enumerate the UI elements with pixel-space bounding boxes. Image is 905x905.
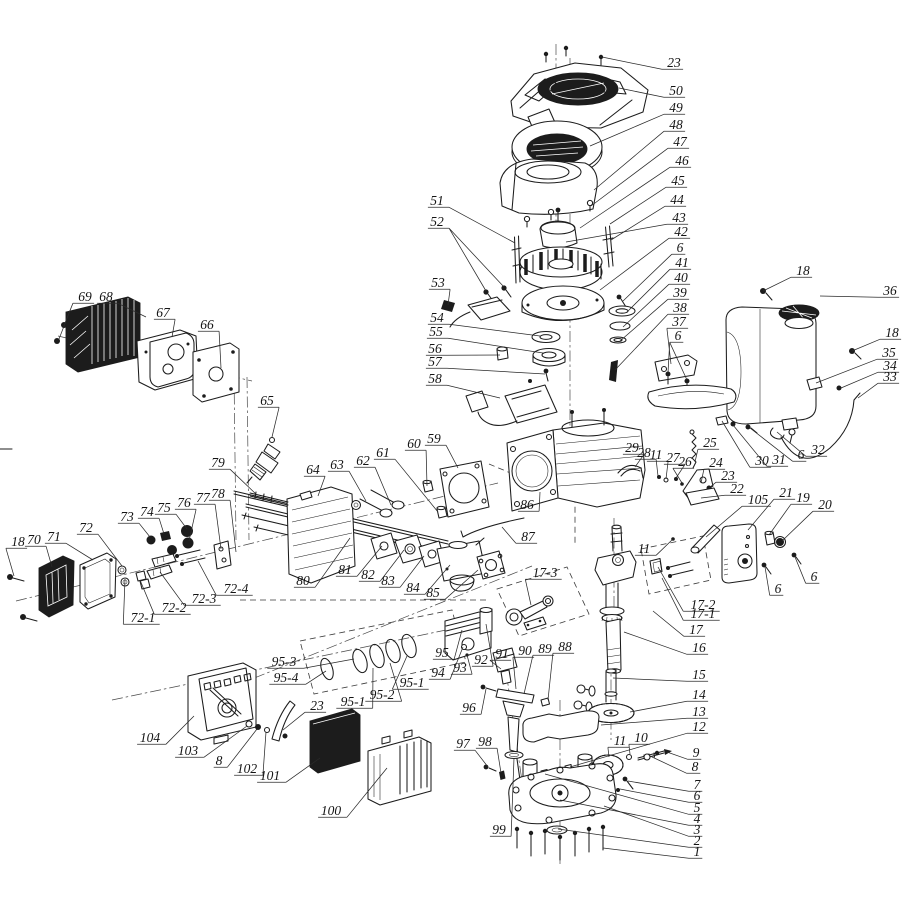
part-number-label: 89 [538,641,552,656]
muffler-gasket [193,343,239,402]
part-number-label: 104 [140,730,161,745]
part-number-label: 17 [689,622,704,637]
callout-95-1: 95-1 [336,668,373,709]
part-number-label: 71 [47,529,61,544]
fuel-filter [807,377,822,390]
part-number-label: 26 [678,454,692,469]
part-number-label: 15 [692,667,706,682]
part-number-label: 64 [306,462,320,477]
valve-cover-gasket [80,553,116,609]
part-number-label: 75 [157,500,171,515]
flywheel-fan [520,247,602,290]
callout-98: 98 [476,734,501,773]
part-number-label: 65 [260,393,274,408]
part-number-label: 72-2 [162,600,187,615]
part-number-label: 17-1 [691,606,716,621]
part-number-label: 95-2 [370,687,395,702]
callout-88: 88 [548,639,574,700]
muffler [137,330,198,390]
part-number-label: 58 [428,371,442,386]
part-number-label: 62 [356,453,370,468]
part-number-label: 69 [78,289,92,304]
part-number-label: 72-4 [224,581,249,596]
control-plate-group [691,524,801,583]
part-number-label: 54 [430,310,444,325]
callout-18: 18 [763,263,812,291]
part-number-label: 77 [196,490,211,505]
part-number-label: 37 [671,314,687,329]
valve-cover [39,556,74,617]
callout-2: 2 [558,829,702,848]
charge-coil [441,297,510,327]
part-number-label: 18 [885,325,899,340]
part-number-label: 22 [730,481,744,496]
part-number-label: 18 [796,263,810,278]
callout-95-3: 95-3 [267,654,354,669]
part-number-label: 99 [492,822,506,837]
callout-43: 43 [566,210,688,242]
part-number-label: 49 [669,100,683,115]
air-filter-housing [188,663,256,744]
part-number-label: 8 [216,753,223,768]
callout-11: 11 [635,539,673,556]
part-number-label: 91 [495,646,509,661]
part-number-label: 19 [796,490,810,505]
part-number-label: 90 [518,643,532,658]
head-gasket [423,461,489,518]
part-number-label: 70 [27,532,41,547]
part-number-label: 41 [675,255,689,270]
diagram-canvas: 2350494847464544434264140393837618361835… [0,0,905,905]
callout-6: 6 [765,567,783,596]
part-number-label: 95-1 [341,694,366,709]
part-number-label: 93 [453,660,467,675]
part-number-label: 40 [674,270,688,285]
part-number-label: 85 [426,585,440,600]
part-number-label: 55 [429,324,443,339]
pushrod-guide-plate [214,541,231,569]
part-number-label: 46 [675,153,689,168]
cover-bolts-18 [7,574,37,621]
part-number-label: 20 [818,497,832,512]
callout-3: 3 [604,806,702,837]
callout-57: 57 [426,354,545,374]
fuel-tank [726,305,819,443]
callout-87: 87 [502,527,537,544]
callout-15: 15 [613,667,708,682]
callout-1: 1 [603,844,702,859]
callout-11: 11 [608,733,629,757]
part-number-label: 1 [694,844,701,859]
callout-95-4: 95-4 [269,670,326,685]
part-number-label: 101 [260,768,280,783]
part-number-label: 18 [11,534,25,549]
part-number-label: 42 [674,224,688,239]
part-number-label: 76 [177,495,191,510]
callout-58: 58 [426,371,500,398]
callout-36: 36 [820,283,899,298]
callout-95-1: 95-1 [392,656,428,690]
part-number-label: 10 [634,730,648,745]
part-number-label: 53 [431,275,445,290]
valves [352,490,405,517]
part-number-label: 45 [671,173,685,188]
crankshaft [595,525,636,673]
part-number-label: 73 [120,509,134,524]
part-number-label: 32 [810,442,825,457]
spark-plug [247,438,280,484]
part-number-label: 82 [361,567,375,582]
part-number-label: 98 [478,734,492,749]
part-number-label: 39 [672,285,687,300]
part-number-label: 17-3 [533,565,558,580]
part-number-label: 95-1 [400,675,425,690]
part-number-label: 84 [406,580,420,595]
part-number-label: 11 [650,447,663,462]
part-number-label: 88 [558,639,572,654]
part-number-label: 68 [99,289,113,304]
callout-10: 10 [629,730,650,754]
part-number-label: 16 [692,640,706,655]
part-number-label: 95-4 [274,670,299,685]
part-number-label: 52 [430,214,444,229]
part-number-label: 47 [673,134,688,149]
part-number-label: 66 [200,317,214,332]
part-number-label: 100 [321,803,342,818]
callout-9: 9 [667,745,701,760]
part-number-label: 83 [381,573,395,588]
part-number-label: 95 [435,645,449,660]
part-number-label: 43 [672,210,686,225]
part-number-label: 8 [692,759,699,774]
part-number-label: 78 [211,486,225,501]
part-number-label: 48 [669,117,683,132]
part-number-label: 6 [675,328,682,343]
part-number-label: 86 [520,497,534,512]
part-number-label: 9 [693,745,700,760]
part-number-label: 57 [428,354,443,369]
callout-6: 6 [620,788,702,803]
part-number-label: 25 [703,435,717,450]
part-number-label: 23 [667,55,681,70]
part-number-label: 44 [670,192,684,207]
part-number-label: 33 [882,369,897,384]
muffler-cover [54,297,140,372]
part-number-label: 81 [338,562,352,577]
part-number-label: 13 [692,704,706,719]
callout-95-2: 95-2 [365,663,401,702]
callout-53: 53 [429,275,450,305]
part-number-label: 51 [430,193,444,208]
part-number-label: 97 [456,736,471,751]
callout-8: 8 [650,756,700,774]
callout-61: 61 [374,445,438,512]
part-number-label: 80 [296,573,310,588]
part-number-label: 87 [521,529,536,544]
part-number-label: 23 [310,698,324,713]
part-number-label: 14 [692,687,706,702]
crankcase-gasket [523,711,599,742]
air-filter-element [310,709,360,773]
part-number-label: 105 [748,492,769,507]
part-number-label: 72-3 [192,591,217,606]
part-number-label: 50 [669,83,683,98]
part-number-label: 6 [775,581,782,596]
callout-104: 104 [137,716,194,745]
callout-96: 96 [460,689,486,715]
part-number-label: 61 [376,445,390,460]
callout-33: 33 [858,369,899,398]
rocker-arm-parts [118,525,231,589]
cylinder-block [507,408,645,511]
part-number-label: 72-1 [131,610,156,625]
callout-18: 18 [6,534,27,576]
ignition-coil [466,379,557,425]
part-number-label: 6 [677,240,684,255]
part-number-label: 96 [462,700,476,715]
crankcase-cover [509,754,616,824]
crank-washers-bearing [497,332,565,382]
woodruff-key [609,360,618,382]
callout-59: 59 [425,431,458,468]
part-number-label: 60 [407,436,421,451]
part-number-label: 72 [79,520,93,535]
callout-55: 55 [427,324,543,353]
fan-housing [500,159,597,227]
part-number-label: 94 [431,665,445,680]
callout-60: 60 [405,436,427,486]
callout-layer: 2350494847464544434264140393837618361835… [6,55,901,859]
part-number-label: 11 [614,733,627,748]
part-number-label: 36 [882,283,897,298]
part-number-label: 79 [211,455,225,470]
part-number-label: 12 [692,719,706,734]
callout-65: 65 [258,393,279,437]
air-filter-cover [368,730,431,805]
throttle-rod [461,518,524,537]
exploded-parts-diagram: 2350494847464544434264140393837618361835… [0,0,905,905]
part-number-label: 11 [638,541,651,556]
part-number-label: 67 [156,305,171,320]
part-number-label: 21 [779,485,793,500]
part-number-label: 95-3 [272,654,297,669]
magneto-rotor [522,286,604,321]
part-number-label: 74 [140,504,154,519]
part-number-label: 102 [237,761,258,776]
part-number-label: 103 [178,743,199,758]
part-number-label: 92 [474,652,488,667]
part-number-label: 63 [330,457,344,472]
callout-7: 7 [628,777,702,792]
part-number-label: 6 [811,569,818,584]
part-number-label: 38 [672,300,687,315]
part-number-label: 59 [427,431,441,446]
